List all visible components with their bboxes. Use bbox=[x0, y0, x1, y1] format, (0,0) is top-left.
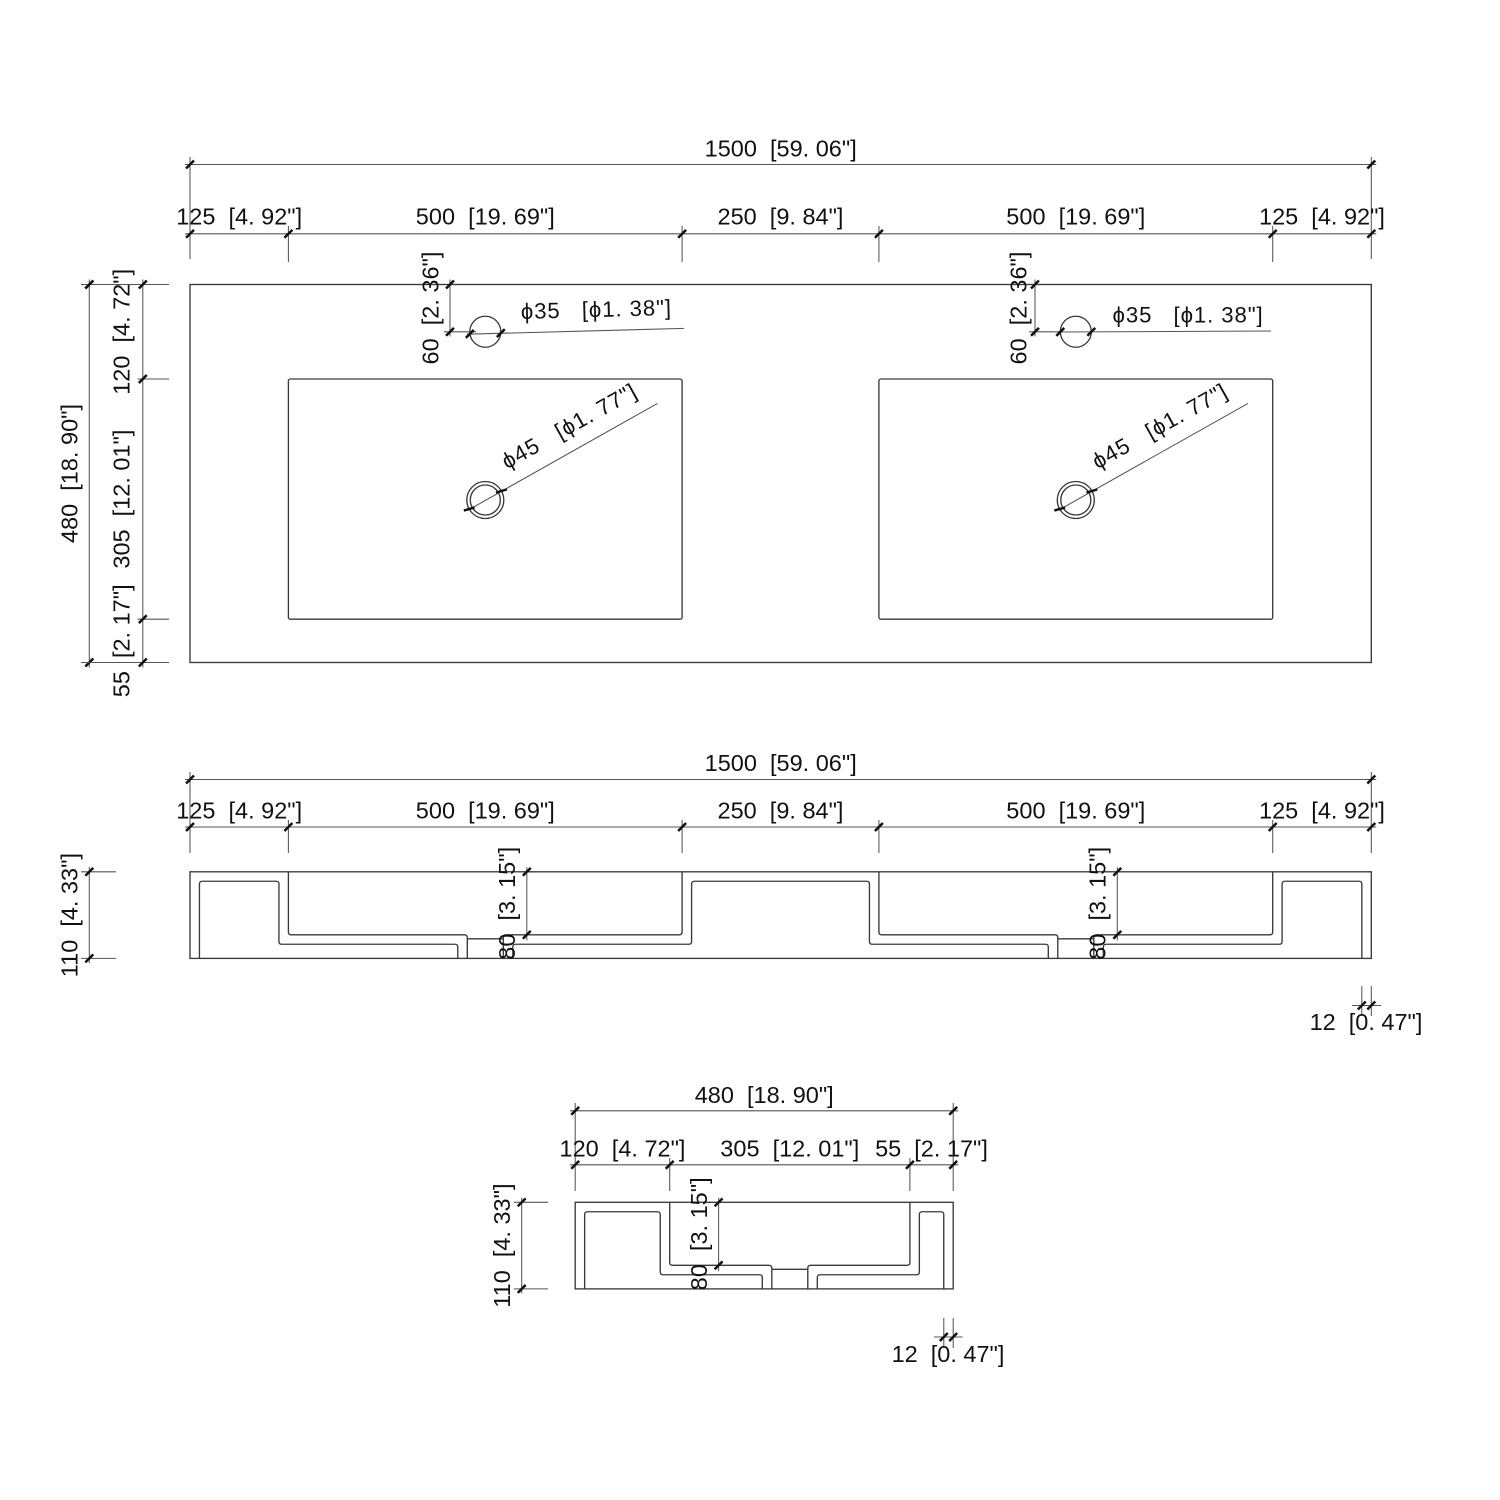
svg-text:110 [4. 33"]: 110 [4. 33"] bbox=[57, 853, 83, 977]
svg-text:12 [0. 47"]: 12 [0. 47"] bbox=[1310, 1009, 1423, 1035]
svg-text:125 [4. 92"]: 125 [4. 92"] bbox=[176, 798, 302, 824]
svg-text:1500 [59. 06"]: 1500 [59. 06"] bbox=[705, 750, 857, 776]
svg-text:125 [4. 92"]: 125 [4. 92"] bbox=[176, 204, 302, 230]
svg-text:55 [2. 17"]: 55 [2. 17"] bbox=[875, 1136, 988, 1162]
svg-text:110 [4. 33"]: 110 [4. 33"] bbox=[489, 1183, 515, 1307]
svg-text:500 [19. 69"]: 500 [19. 69"] bbox=[416, 204, 555, 230]
svg-text:500 [19. 69"]: 500 [19. 69"] bbox=[1006, 204, 1145, 230]
svg-text:480 [18. 90"]: 480 [18. 90"] bbox=[695, 1082, 834, 1108]
svg-text:305 [12. 01"]: 305 [12. 01"] bbox=[109, 430, 135, 569]
svg-text:80 [3. 15"]: 80 [3. 15"] bbox=[686, 1177, 712, 1290]
svg-text:ϕ35 [ϕ1. 38"]: ϕ35 [ϕ1. 38"] bbox=[1113, 303, 1264, 328]
svg-text:480 [18. 90"]: 480 [18. 90"] bbox=[57, 404, 83, 543]
svg-text:60 [2. 36"]: 60 [2. 36"] bbox=[1005, 252, 1031, 365]
svg-text:80 [3. 15"]: 80 [3. 15"] bbox=[494, 847, 520, 960]
svg-text:125 [4. 92"]: 125 [4. 92"] bbox=[1259, 204, 1385, 230]
svg-text:1500 [59. 06"]: 1500 [59. 06"] bbox=[705, 136, 857, 162]
svg-text:ϕ35 [ϕ1. 38"]: ϕ35 [ϕ1. 38"] bbox=[520, 295, 672, 324]
svg-text:80 [3. 15"]: 80 [3. 15"] bbox=[1085, 847, 1111, 960]
svg-text:120 [4. 72"]: 120 [4. 72"] bbox=[560, 1136, 686, 1162]
svg-text:60 [2. 36"]: 60 [2. 36"] bbox=[417, 252, 443, 365]
svg-text:125 [4. 92"]: 125 [4. 92"] bbox=[1259, 798, 1385, 824]
svg-text:12 [0. 47"]: 12 [0. 47"] bbox=[892, 1341, 1005, 1367]
svg-text:500 [19. 69"]: 500 [19. 69"] bbox=[416, 798, 555, 824]
svg-text:55 [2. 17"]: 55 [2. 17"] bbox=[109, 584, 135, 697]
svg-text:250 [9. 84"]: 250 [9. 84"] bbox=[718, 798, 844, 824]
svg-text:120 [4. 72"]: 120 [4. 72"] bbox=[109, 269, 135, 395]
svg-text:305 [12. 01"]: 305 [12. 01"] bbox=[720, 1136, 859, 1162]
svg-text:500 [19. 69"]: 500 [19. 69"] bbox=[1006, 798, 1145, 824]
svg-text:250 [9. 84"]: 250 [9. 84"] bbox=[718, 204, 844, 230]
